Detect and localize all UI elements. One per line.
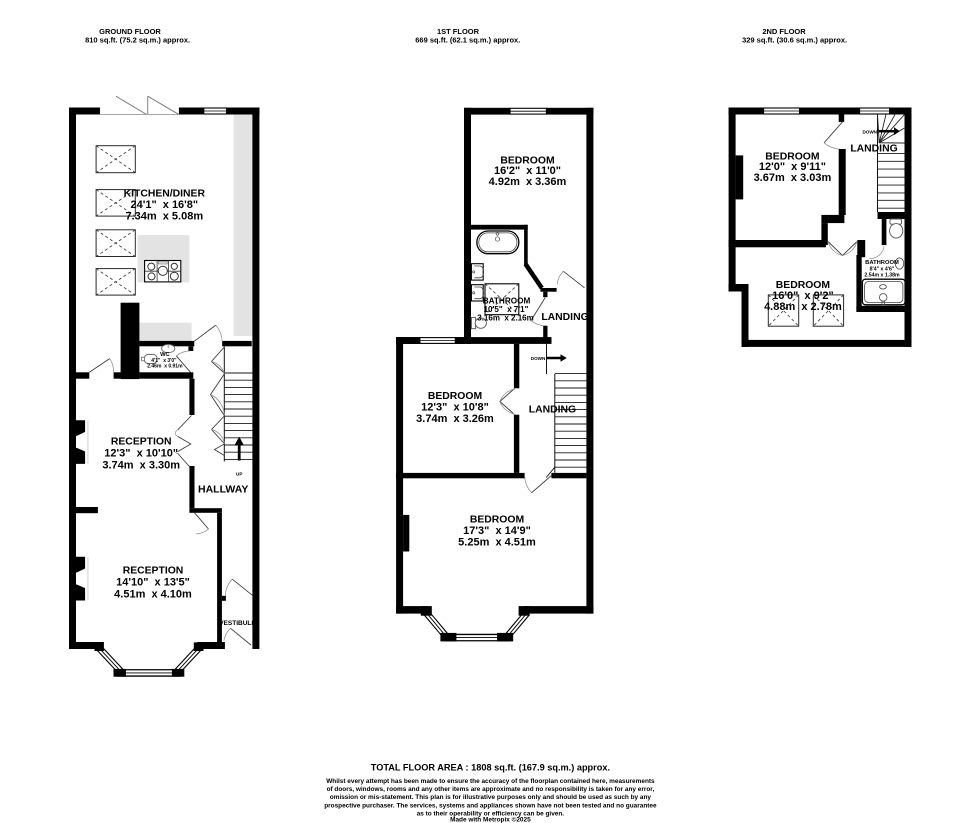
svg-text:BEDROOM: BEDROOM	[470, 515, 524, 526]
svg-text:16'2" x 11'0": 16'2" x 11'0"	[494, 165, 561, 177]
svg-text:DOWN: DOWN	[862, 129, 877, 134]
svg-text:Made with Metropix ©2025: Made with Metropix ©2025	[450, 816, 531, 823]
svg-text:12'3" x 10'8": 12'3" x 10'8"	[421, 402, 489, 414]
svg-text:of doors, windows, rooms and a: of doors, windows, rooms and any other i…	[327, 786, 655, 793]
svg-text:DOWN: DOWN	[531, 356, 546, 361]
svg-text:24'1" x 16'8": 24'1" x 16'8"	[130, 199, 198, 211]
svg-text:prospective purchaser. The ser: prospective purchaser. The services, sys…	[324, 802, 657, 809]
svg-text:3.67m x 3.03m: 3.67m x 3.03m	[754, 172, 832, 184]
svg-text:14'10" x 13'5": 14'10" x 13'5"	[116, 577, 190, 589]
svg-text:TOTAL FLOOR AREA : 1808 sq.ft.: TOTAL FLOOR AREA : 1808 sq.ft. (167.9 sq…	[371, 763, 610, 773]
svg-text:RECEPTION: RECEPTION	[123, 566, 184, 577]
svg-text:LANDING: LANDING	[850, 144, 897, 155]
svg-text:810 sq.ft. (75.2 sq.m.) approx: 810 sq.ft. (75.2 sq.m.) approx.	[85, 35, 190, 44]
svg-text:omission or mis-statement. Thi: omission or mis-statement. This plan is …	[330, 794, 652, 801]
svg-text:329 sq.ft. (30.6 sq.m.) approx: 329 sq.ft. (30.6 sq.m.) approx.	[742, 35, 847, 44]
svg-text:5.25m x 4.51m: 5.25m x 4.51m	[458, 537, 536, 549]
svg-text:3.74m x 3.26m: 3.74m x 3.26m	[416, 413, 494, 425]
svg-text:4.88m x 2.78m: 4.88m x 2.78m	[764, 301, 842, 313]
svg-text:LANDING: LANDING	[529, 404, 576, 415]
svg-text:BEDROOM: BEDROOM	[428, 391, 482, 402]
svg-text:UP: UP	[236, 472, 242, 477]
svg-text:HALLWAY: HALLWAY	[198, 484, 248, 496]
svg-text:3.74m x 3.30m: 3.74m x 3.30m	[102, 460, 180, 472]
svg-text:Whilst every attempt has been: Whilst every attempt has been made to en…	[326, 778, 655, 785]
svg-text:2.54m x 1.38m: 2.54m x 1.38m	[864, 272, 900, 278]
svg-text:VESTIBULE: VESTIBULE	[219, 620, 256, 627]
svg-text:2.46m x 0.91m: 2.46m x 0.91m	[147, 363, 183, 369]
svg-text:KITCHEN/DINER: KITCHEN/DINER	[124, 189, 206, 200]
svg-text:BATHROOM: BATHROOM	[865, 260, 899, 266]
svg-text:7.34m x 5.08m: 7.34m x 5.08m	[125, 211, 203, 223]
svg-text:669 sq.ft. (62.1 sq.m.) approx: 669 sq.ft. (62.1 sq.m.) approx.	[415, 35, 520, 44]
svg-text:12'3" x 10'10": 12'3" x 10'10"	[104, 448, 178, 460]
svg-text:4.92m x 3.36m: 4.92m x 3.36m	[489, 176, 567, 188]
svg-text:RECEPTION: RECEPTION	[111, 437, 172, 448]
svg-text:LANDING: LANDING	[541, 312, 588, 323]
svg-text:4.51m x 4.10m: 4.51m x 4.10m	[114, 589, 192, 601]
svg-text:17'3" x 14'9": 17'3" x 14'9"	[463, 525, 531, 537]
svg-text:3.16m x 2.16m: 3.16m x 2.16m	[477, 313, 533, 322]
